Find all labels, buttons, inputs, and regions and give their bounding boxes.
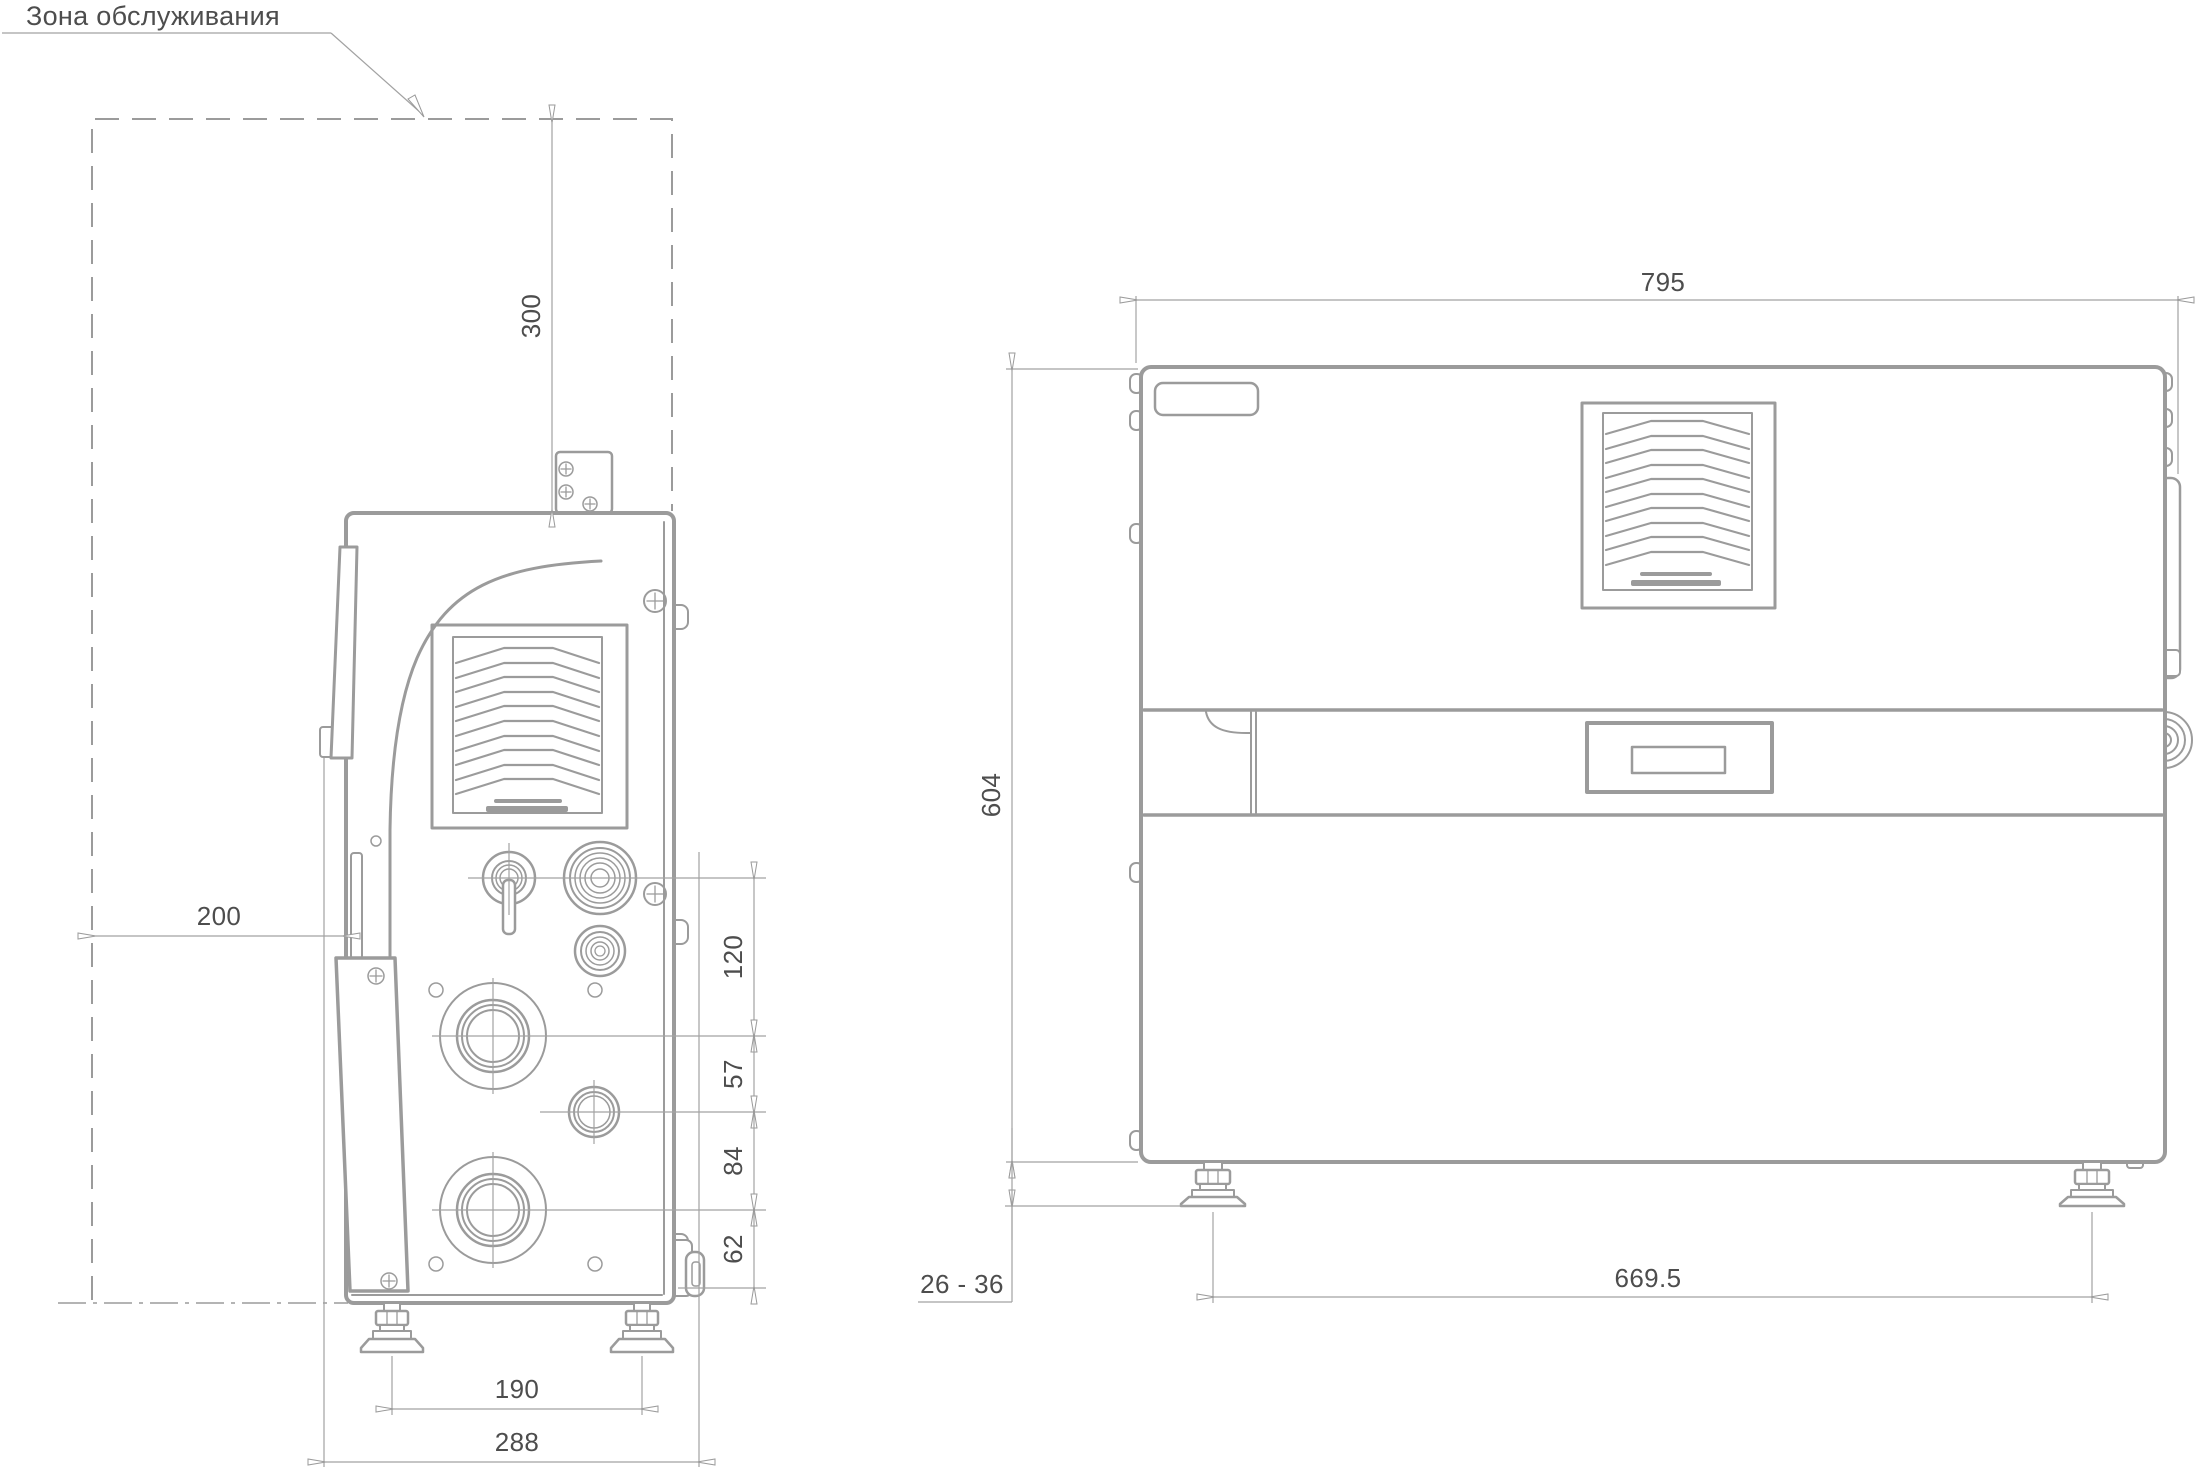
torch-holder-cap	[686, 1252, 704, 1296]
dim-text-288: 288	[495, 1427, 540, 1457]
technical-drawing-page: Зона обслуживания	[0, 0, 2199, 1467]
dim-text-795: 795	[1641, 267, 1686, 297]
top-bracket	[556, 452, 612, 513]
dim-text-604: 604	[976, 773, 1006, 818]
grille-fan-bar	[1640, 572, 1712, 576]
side-door-panel	[336, 958, 408, 1291]
grille-fan-base	[1631, 580, 1721, 586]
torch-connector-front	[2164, 712, 2192, 768]
zone-leader-arrowhead	[408, 95, 424, 117]
control-connector-socket	[575, 926, 625, 976]
front-view	[1130, 367, 2192, 1206]
grille-fan-base	[486, 806, 568, 812]
panel-screw	[644, 883, 666, 905]
adjustable-foot	[361, 1303, 423, 1352]
bracket-screw	[559, 485, 573, 499]
machine-body-front	[1141, 367, 2165, 1162]
panel-screw	[644, 590, 666, 612]
grille-fan-bar	[494, 799, 562, 803]
adjustable-foot	[1181, 1162, 1245, 1206]
bracket-screw	[559, 462, 573, 476]
door-screw	[381, 1273, 397, 1289]
adjustable-foot	[611, 1303, 673, 1352]
dim-text-300: 300	[516, 294, 546, 339]
dimension-drawing: Зона обслуживания	[0, 0, 2199, 1467]
dim-text-84: 84	[718, 1146, 748, 1176]
adjustable-foot	[2060, 1162, 2124, 1206]
dim-text-57: 57	[718, 1059, 748, 1089]
bracket-screw	[583, 497, 597, 511]
hinge-bar	[351, 853, 362, 959]
dim-text-6695: 669.5	[1614, 1263, 1681, 1293]
dim-text-200: 200	[197, 901, 242, 931]
dim-text-190: 190	[495, 1374, 540, 1404]
side-handle-strip	[331, 547, 357, 758]
dim-text-120: 120	[718, 935, 748, 980]
door-screw	[368, 968, 384, 984]
dim-text-62: 62	[718, 1234, 748, 1264]
dim-text-feet-height: 26 - 36	[920, 1269, 1004, 1299]
zone-leader-line	[331, 33, 421, 113]
service-zone-label: Зона обслуживания	[26, 1, 280, 31]
